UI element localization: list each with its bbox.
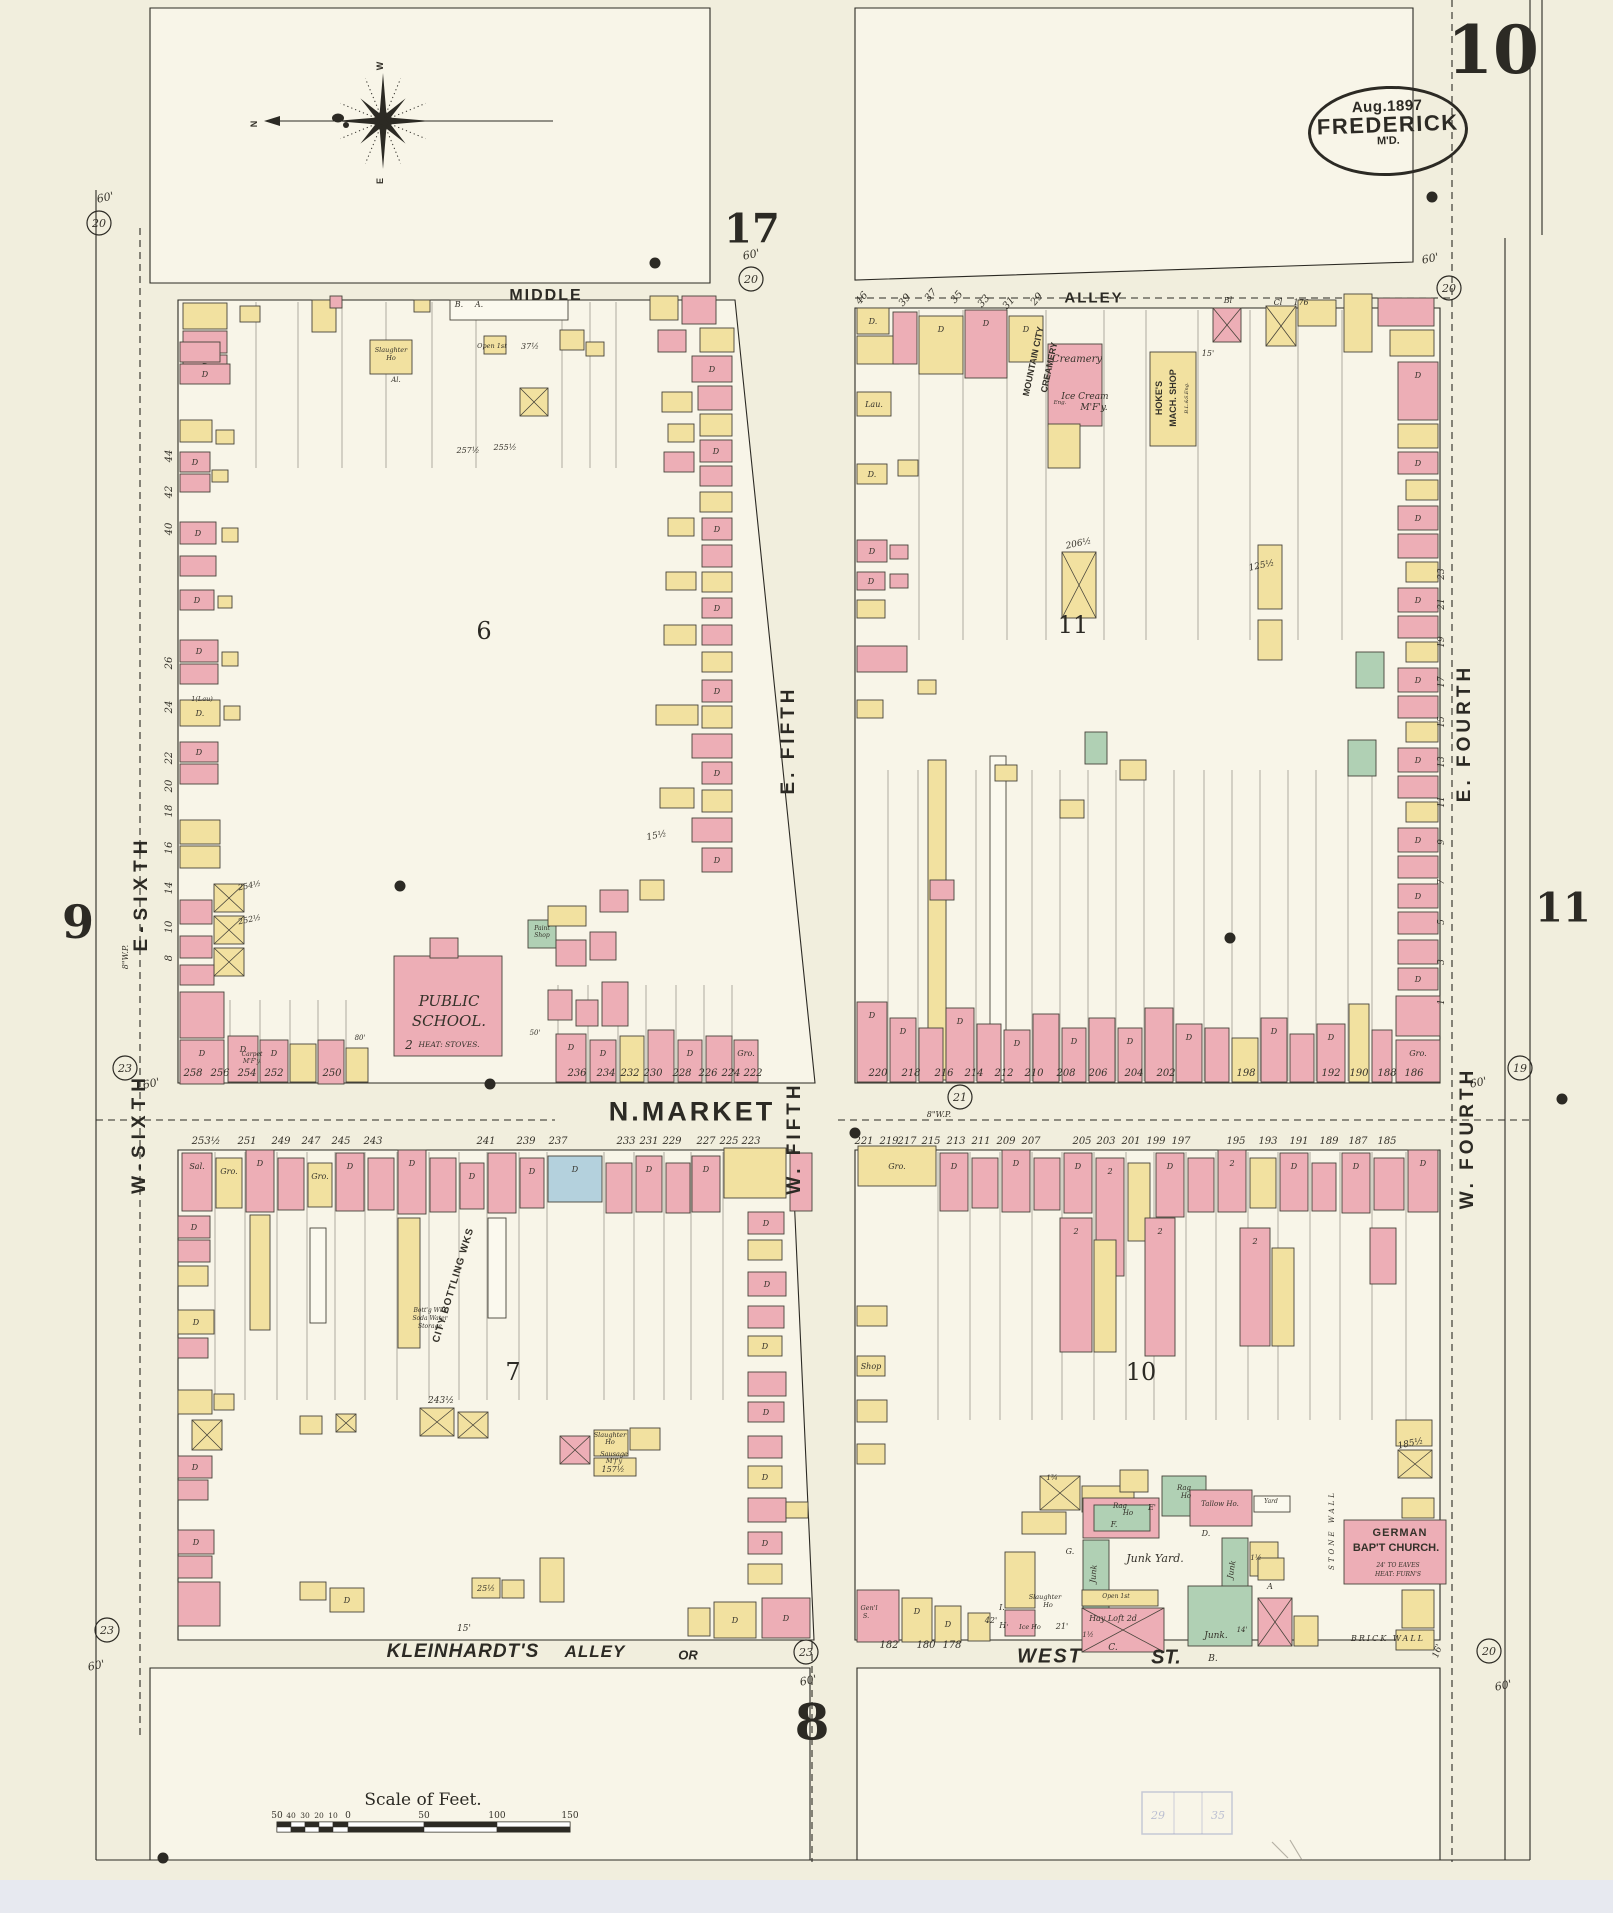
- map-label: 258: [182, 1068, 202, 1079]
- map-label: 228: [671, 1068, 691, 1079]
- building: [668, 424, 694, 442]
- map-label: 198: [1236, 1068, 1255, 1079]
- map-label: 21': [1055, 1622, 1068, 1631]
- map-label: C.: [1108, 1643, 1118, 1653]
- building: [1258, 545, 1282, 609]
- map-label: 257½: [455, 446, 479, 455]
- map-label: 11: [1437, 796, 1447, 807]
- map-label: A.: [474, 300, 483, 309]
- building: [640, 880, 664, 900]
- map-label: 15': [1202, 349, 1214, 358]
- scale-bar-cell: [319, 1822, 333, 1827]
- building: [857, 646, 907, 672]
- map-label: 1(Lau): [191, 695, 213, 703]
- building-label: D: [1290, 1162, 1298, 1171]
- map-label: 210: [1023, 1068, 1044, 1079]
- registration-dot: [1225, 933, 1236, 944]
- building-label: Gro.: [737, 1049, 754, 1058]
- building: [1344, 294, 1372, 352]
- map-label: 212: [993, 1068, 1013, 1079]
- building: [666, 572, 696, 590]
- map-label: 214: [963, 1068, 983, 1079]
- block-number-6: 6: [476, 617, 491, 645]
- map-label: M'F'y.: [242, 1058, 261, 1065]
- map-label: M'F'y.: [1079, 403, 1107, 413]
- building-label: D: [868, 1011, 876, 1020]
- building-label: D: [1414, 514, 1422, 523]
- building: [1356, 652, 1384, 688]
- building-label: D: [193, 596, 201, 605]
- map-label: 14': [1237, 1626, 1248, 1634]
- building: [666, 1163, 690, 1213]
- building: [1060, 800, 1084, 818]
- map-label: 37½: [521, 342, 539, 351]
- map-label: Soda Water: [412, 1315, 448, 1322]
- street-label-w-fourth: W. FOURTH: [1457, 1067, 1479, 1210]
- map-label: B.: [1207, 1654, 1218, 1664]
- building: [430, 1158, 456, 1212]
- compass-label-e: E: [375, 178, 385, 184]
- map-label: Junk.: [1202, 1631, 1228, 1641]
- map-label: 237: [547, 1136, 568, 1147]
- registration-dot: [485, 1079, 496, 1090]
- scale-bar-cell: [497, 1827, 570, 1832]
- map-label: 8"W.P.: [927, 1110, 951, 1119]
- map-label: Paint: [533, 925, 550, 932]
- map-label: F.: [1110, 1520, 1118, 1529]
- building-label: D: [191, 1463, 199, 1472]
- building-label: D: [713, 856, 721, 865]
- building-label: Gro.: [888, 1162, 905, 1171]
- building: [664, 625, 696, 645]
- scale-bar-cell: [305, 1827, 319, 1832]
- scale-bar-cell: [424, 1822, 497, 1827]
- building-label: 2: [1156, 1227, 1162, 1236]
- building-label: D: [346, 1162, 354, 1171]
- map-label: HOKE'S: [1154, 381, 1164, 415]
- building-label: D: [571, 1165, 579, 1174]
- building-label: Gro.: [1409, 1049, 1426, 1058]
- map-label: B.L.&S.Eng.: [1184, 382, 1190, 415]
- building: [857, 1306, 887, 1326]
- registration-dot: [1557, 1094, 1568, 1105]
- map-label: 178: [942, 1640, 961, 1651]
- building: [224, 706, 240, 720]
- building: [702, 545, 732, 567]
- building: [178, 1480, 208, 1500]
- sheet-number: 10: [1447, 11, 1539, 89]
- building: [183, 303, 227, 329]
- building-label: D: [937, 325, 945, 334]
- building: [857, 600, 885, 618]
- street-label-e-fourth: E. FOURTH: [1454, 664, 1476, 802]
- registration-dot: [650, 258, 661, 269]
- building: [1406, 642, 1438, 662]
- city-block-outline: [857, 1668, 1440, 1860]
- scale-bar-cell: [348, 1827, 424, 1832]
- map-label: E': [1147, 1503, 1156, 1512]
- building: [180, 764, 218, 784]
- map-label: 80': [355, 1034, 366, 1042]
- building: [576, 1000, 598, 1026]
- building: [656, 705, 698, 725]
- map-label: 220: [867, 1068, 888, 1079]
- building: [1034, 1158, 1060, 1210]
- map-label: 256: [209, 1068, 230, 1079]
- street-label-e-fifth: E. FIFTH: [778, 685, 800, 794]
- scale-bar-cell: [333, 1822, 348, 1827]
- adjacent-sheet-bottom: 8: [795, 1693, 830, 1752]
- building: [290, 1044, 316, 1082]
- building-label: D: [408, 1159, 416, 1168]
- map-label: PUBLIC: [418, 992, 480, 1010]
- map-label: 3: [1437, 959, 1447, 965]
- map-label: Carpet: [242, 1051, 263, 1058]
- building: [310, 1228, 326, 1323]
- building-label: D: [782, 1614, 790, 1623]
- building-label: D: [1414, 676, 1422, 685]
- building-label: D: [686, 1049, 694, 1058]
- building: [178, 1240, 210, 1262]
- street-label-w-sixth: W-SIXTH: [129, 1072, 151, 1194]
- map-label: 10: [164, 920, 175, 933]
- building: [1398, 940, 1438, 964]
- building: [688, 1608, 710, 1636]
- building: [560, 330, 584, 350]
- building-label: D: [956, 1017, 964, 1026]
- map-label: 15': [457, 1624, 471, 1634]
- map-label: Ho: [604, 1438, 615, 1446]
- building: [548, 906, 586, 926]
- map-label: Cl: [1274, 298, 1283, 307]
- building: [668, 518, 694, 536]
- map-label: 176: [1293, 298, 1308, 307]
- intersection-marker-number: 23: [99, 1624, 114, 1637]
- building: [786, 1502, 808, 1518]
- map-label: 50': [530, 1029, 541, 1037]
- map-label: 225: [718, 1136, 738, 1147]
- building-label: D: [190, 1223, 198, 1232]
- map-label: 232: [619, 1068, 639, 1079]
- building-label: D: [713, 604, 721, 613]
- map-label: GERMAN: [1373, 1527, 1428, 1539]
- building: [748, 1564, 782, 1584]
- building: [178, 1582, 220, 1626]
- building: [692, 818, 732, 842]
- intersection-marker-number: 21: [952, 1091, 967, 1104]
- building: [902, 1598, 932, 1642]
- map-label: 60': [87, 1657, 106, 1673]
- map-label: 21: [1437, 598, 1447, 610]
- building-label: D: [567, 1043, 575, 1052]
- registration-dot: [1427, 192, 1438, 203]
- map-label: 25½: [476, 1584, 495, 1593]
- map-label: 186: [1404, 1068, 1424, 1079]
- building: [346, 1048, 368, 1082]
- building: [1398, 912, 1438, 934]
- building: [1406, 802, 1438, 822]
- building: [698, 386, 732, 410]
- building-label: D: [761, 1342, 769, 1351]
- building-label: D: [899, 1027, 907, 1036]
- map-label: 24: [164, 701, 175, 715]
- map-label: 191: [1289, 1136, 1308, 1147]
- building-label: 2: [1251, 1237, 1257, 1246]
- building: [1145, 1218, 1175, 1356]
- building: [460, 1163, 484, 1209]
- street-label-n-market: N.MARKET: [609, 1097, 776, 1128]
- map-label: Hay Loft 2d: [1088, 1614, 1137, 1623]
- building: [748, 1372, 786, 1396]
- map-label: 190: [1349, 1068, 1369, 1079]
- building: [214, 1394, 234, 1410]
- building: [178, 1338, 208, 1358]
- scale-bar-cell: [277, 1822, 291, 1827]
- building: [1402, 1590, 1434, 1628]
- map-label: MACH. SHOP: [1168, 369, 1178, 427]
- map-label: 60': [799, 1672, 818, 1688]
- map-label: 187: [1348, 1136, 1368, 1147]
- map-label: 33: [976, 293, 993, 310]
- building: [180, 556, 216, 576]
- map-label: 224: [720, 1068, 740, 1079]
- map-label: H·: [998, 1621, 1009, 1630]
- map-label: G.: [1066, 1547, 1075, 1556]
- map-label: 60': [1421, 250, 1440, 266]
- map-label: 204: [1123, 1068, 1143, 1079]
- map-label: 23: [1437, 568, 1447, 581]
- street-label-west-st: ST.: [1151, 1647, 1181, 1670]
- building-label: D: [868, 547, 876, 556]
- map-label: 245: [330, 1136, 350, 1147]
- building: [180, 965, 214, 985]
- scale-bar-cell: [333, 1827, 348, 1832]
- map-label: 9: [1437, 839, 1447, 845]
- building: [606, 1163, 632, 1213]
- map-label: 14: [164, 882, 175, 895]
- map-label: 2: [404, 1038, 413, 1052]
- building: [700, 466, 732, 486]
- map-label: 20: [164, 779, 175, 793]
- building: [1398, 534, 1438, 558]
- map-label: 35: [949, 289, 966, 306]
- building-label: D: [763, 1280, 771, 1289]
- building-label: D: [1166, 1162, 1174, 1171]
- building: [180, 992, 224, 1038]
- map-label: 219: [878, 1136, 899, 1147]
- building-label: 2: [1106, 1167, 1112, 1176]
- building-label: Gro.: [311, 1172, 328, 1181]
- map-label: 230: [642, 1068, 663, 1079]
- building: [1348, 740, 1376, 776]
- map-label: 1¾: [1046, 1474, 1057, 1482]
- map-label: 199: [1146, 1136, 1166, 1147]
- building: [1398, 776, 1438, 798]
- block-number-7: 7: [505, 1358, 520, 1386]
- building: [502, 1580, 524, 1598]
- map-label: Ho: [1180, 1492, 1191, 1500]
- building: [488, 1218, 506, 1318]
- street-label-kleinhardts-or: OR: [678, 1648, 698, 1663]
- library-stamp-number: 29: [1150, 1809, 1165, 1822]
- building: [682, 296, 716, 324]
- building: [300, 1582, 326, 1600]
- map-label: 215: [920, 1136, 940, 1147]
- map-label: 251: [236, 1136, 256, 1147]
- building-label: D: [1414, 975, 1422, 984]
- map-label: 7: [1437, 879, 1447, 885]
- map-label: Tallow Ho.: [1201, 1500, 1239, 1508]
- intersection-marker-number: 23: [798, 1646, 813, 1659]
- scale-tick: 50: [418, 1811, 430, 1821]
- building: [178, 1556, 212, 1578]
- building-label: 2: [1228, 1159, 1234, 1168]
- map-label: 193: [1258, 1136, 1277, 1147]
- building: [898, 460, 918, 476]
- map-label: 17: [1437, 676, 1447, 688]
- map-label: 241: [475, 1136, 495, 1147]
- ice-cream-mfy: [1048, 424, 1080, 468]
- building: [414, 300, 430, 312]
- building: [1272, 1248, 1294, 1346]
- street-label-kleinhardts-alley: ALLEY: [565, 1642, 626, 1662]
- map-label: 229: [661, 1136, 682, 1147]
- building-label: D: [192, 1538, 200, 1547]
- map-label: 252: [263, 1068, 283, 1079]
- scale-bar-cell: [497, 1822, 570, 1827]
- map-label: STONE WALL: [1328, 1490, 1336, 1570]
- building: [1258, 620, 1282, 660]
- building: [180, 664, 218, 684]
- building-label: D: [1414, 459, 1422, 468]
- building: [308, 1163, 332, 1207]
- building: [1390, 330, 1434, 356]
- map-label: 253½: [191, 1136, 221, 1147]
- map-label: 206: [1087, 1068, 1108, 1079]
- map-label: Open 1st: [1102, 1593, 1130, 1600]
- map-label: 231: [638, 1136, 658, 1147]
- map-label: 13: [1437, 756, 1447, 768]
- building: [1398, 856, 1438, 878]
- map-label: Slaughter: [1029, 1593, 1062, 1601]
- building: [857, 700, 883, 718]
- building-label: D: [762, 1219, 770, 1228]
- building-label: D: [1185, 1033, 1193, 1042]
- map-label: B.: [454, 300, 463, 309]
- building-label: D: [194, 529, 202, 538]
- scale-tick: 50: [271, 1811, 283, 1821]
- map-label: 218: [900, 1068, 920, 1079]
- building: [1060, 1218, 1092, 1352]
- map-label: Al.: [390, 376, 401, 384]
- map-label: 1½: [1250, 1554, 1261, 1562]
- map-label: D.: [1201, 1529, 1211, 1538]
- tallow-house: [1190, 1490, 1252, 1526]
- intersection-marker-number: 20: [743, 273, 758, 286]
- map-label: 243: [362, 1136, 382, 1147]
- map-label: 213: [945, 1136, 965, 1147]
- building: [995, 765, 1017, 781]
- map-label: 180: [916, 1640, 936, 1651]
- map-label: Junk: [1088, 1564, 1099, 1585]
- building: [488, 1153, 516, 1213]
- map-label: 233: [615, 1136, 635, 1147]
- building: [857, 1400, 887, 1422]
- building: [222, 528, 238, 542]
- map-label: 22: [164, 752, 175, 766]
- building: [180, 342, 220, 362]
- map-label: M'f'y: [605, 1457, 623, 1465]
- building: [602, 982, 628, 1026]
- building: [702, 706, 732, 728]
- building-label: D: [761, 1539, 769, 1548]
- building-label: D: [201, 370, 209, 379]
- building: [658, 330, 686, 352]
- building-label: D: [982, 319, 990, 328]
- building: [890, 574, 908, 588]
- building: [724, 1148, 786, 1198]
- building-label: D: [1352, 1162, 1360, 1171]
- building: [590, 932, 616, 960]
- map-label: Junk Yard.: [1124, 1552, 1184, 1565]
- map-label: 60': [96, 189, 115, 205]
- building-label: D: [468, 1172, 476, 1181]
- map-label: Bl: [1223, 296, 1233, 305]
- scale-bar-cell: [348, 1822, 424, 1827]
- building: [216, 1158, 242, 1208]
- intersection-marker-number: 20: [1481, 1645, 1496, 1658]
- map-label: 202: [1155, 1068, 1175, 1079]
- building: [702, 790, 732, 812]
- compass-label-w: W: [375, 61, 385, 70]
- map-label: 37: [923, 286, 940, 303]
- building-label: D: [1414, 596, 1422, 605]
- building: [300, 1416, 322, 1434]
- building-label: 2: [1072, 1227, 1078, 1236]
- building-label: D: [944, 1620, 952, 1629]
- building-label: D: [1414, 371, 1422, 380]
- building: [180, 474, 210, 492]
- building: [630, 1428, 660, 1450]
- scale-bar-cell: [305, 1822, 319, 1827]
- map-label: 197: [1171, 1136, 1191, 1147]
- map-label: 1½: [1082, 1631, 1093, 1639]
- building: [180, 820, 220, 844]
- map-label: 208: [1055, 1068, 1075, 1079]
- building: [972, 1158, 998, 1208]
- map-label: HEAT: STOVES.: [418, 1040, 480, 1049]
- sanborn-map-sheet: DDDDDDDDDDDDDD.DDDDDGro.DDD.DDDDDDDDDDDD…: [0, 0, 1613, 1913]
- building: [664, 452, 694, 472]
- adjacent-sheet-left: 9: [62, 895, 94, 949]
- map-canvas: DDDDDDDDDDDDDD.DDDDDGro.DDD.DDDDDDDDDDDD…: [0, 0, 1613, 1913]
- building: [180, 846, 220, 868]
- building: [1402, 1498, 1434, 1518]
- building-label: D: [343, 1596, 351, 1605]
- scale-tick: 40: [286, 1811, 296, 1820]
- map-label: 19: [1437, 636, 1447, 648]
- map-label: 188: [1377, 1068, 1396, 1079]
- map-label: 239: [515, 1136, 536, 1147]
- building: [1250, 1158, 1276, 1208]
- building: [240, 306, 260, 322]
- registration-dot: [158, 1853, 169, 1864]
- scale-tick: 30: [300, 1811, 310, 1820]
- map-label: 250: [321, 1068, 342, 1079]
- map-label: 207: [1020, 1136, 1041, 1147]
- building: [692, 734, 732, 758]
- building: [1312, 1163, 1336, 1211]
